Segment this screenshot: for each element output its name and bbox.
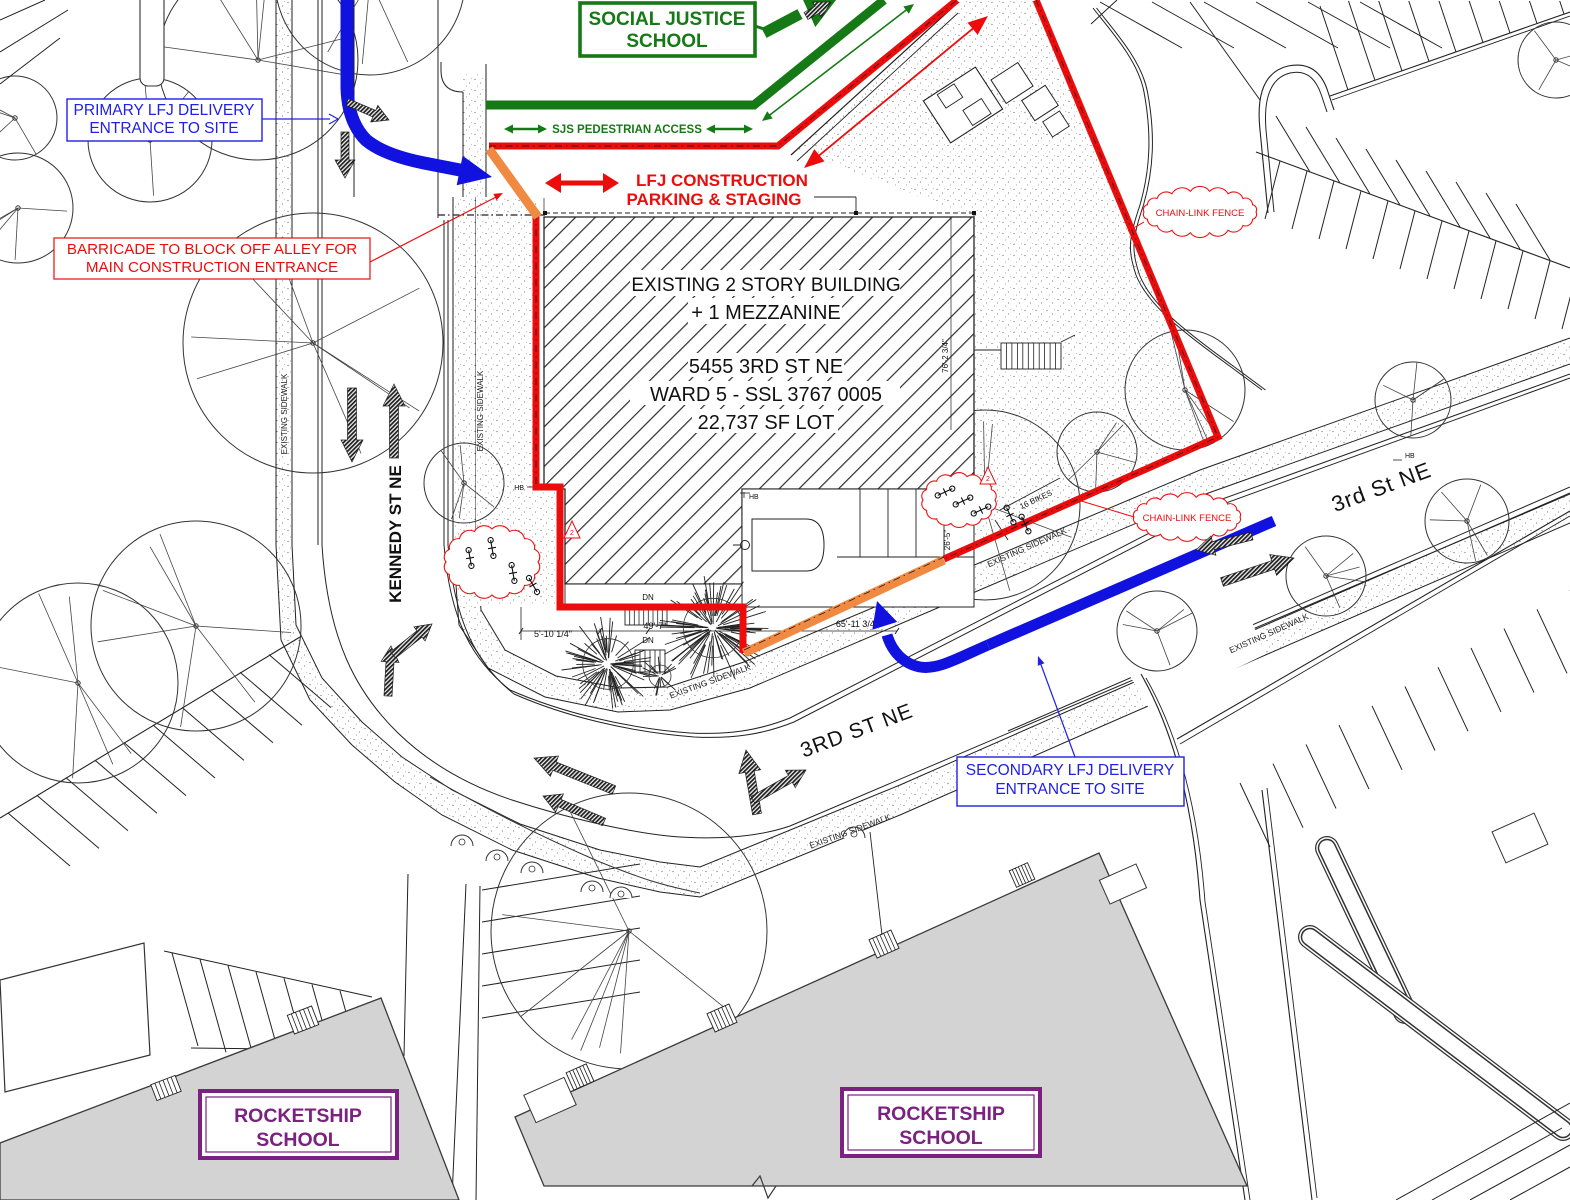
svg-text:HB: HB [1405, 453, 1415, 460]
svg-text:EXISTING 2 STORY BUILDING: EXISTING 2 STORY BUILDING [631, 275, 900, 296]
svg-text:65'-11 3/4": 65'-11 3/4" [836, 619, 878, 629]
svg-text:DN: DN [642, 593, 654, 602]
svg-text:SJS PEDESTRIAN ACCESS: SJS PEDESTRIAN ACCESS [552, 124, 702, 136]
svg-text:ENTRANCE TO SITE: ENTRANCE TO SITE [89, 120, 238, 137]
svg-text:+ 1 MEZZANINE: + 1 MEZZANINE [691, 302, 840, 324]
svg-text:DN: DN [642, 636, 654, 645]
svg-text:SOCIAL JUSTICE: SOCIAL JUSTICE [589, 9, 746, 30]
svg-text:CHAIN-LINK FENCE: CHAIN-LINK FENCE [1143, 513, 1232, 524]
svg-text:MAIN CONSTRUCTION ENTRANCE: MAIN CONSTRUCTION ENTRANCE [86, 259, 338, 276]
svg-text:EXISTING SIDEWALK: EXISTING SIDEWALK [280, 373, 289, 454]
svg-text:CHAIN-LINK FENCE: CHAIN-LINK FENCE [1156, 208, 1245, 219]
svg-text:26'-5": 26'-5" [943, 530, 952, 551]
svg-text:SCHOOL: SCHOOL [899, 1127, 983, 1149]
svg-text:ROCKETSHIP: ROCKETSHIP [234, 1105, 362, 1127]
svg-text:5'-10 1/4": 5'-10 1/4" [534, 629, 572, 639]
svg-text:LFJ CONSTRUCTION: LFJ CONSTRUCTION [636, 171, 808, 190]
svg-text:2: 2 [570, 530, 574, 537]
svg-text:BARRICADE TO BLOCK OFF ALLEY F: BARRICADE TO BLOCK OFF ALLEY FOR [67, 241, 357, 258]
svg-text:SCHOOL: SCHOOL [626, 31, 708, 52]
svg-text:2: 2 [986, 476, 990, 483]
svg-text:ENTRANCE TO SITE: ENTRANCE TO SITE [995, 781, 1144, 798]
svg-text:HB: HB [514, 485, 524, 492]
svg-text:PARKING & STAGING: PARKING & STAGING [626, 190, 801, 209]
svg-text:76'-2 3/4": 76'-2 3/4" [941, 339, 950, 373]
svg-text:WARD 5 - SSL 3767 0005: WARD 5 - SSL 3767 0005 [650, 384, 882, 406]
svg-text:KENNEDY ST NE: KENNEDY ST NE [386, 465, 405, 603]
svg-text:22,737 SF LOT: 22,737 SF LOT [698, 412, 835, 434]
svg-text:ROCKETSHIP: ROCKETSHIP [877, 1103, 1005, 1125]
svg-text:PRIMARY LFJ DELIVERY: PRIMARY LFJ DELIVERY [74, 102, 255, 119]
svg-text:HB: HB [749, 494, 759, 501]
svg-text:5455 3RD ST NE: 5455 3RD ST NE [689, 356, 843, 378]
svg-text:SCHOOL: SCHOOL [256, 1129, 340, 1151]
svg-text:EXISTING SIDEWALK: EXISTING SIDEWALK [476, 370, 485, 451]
svg-text:SECONDARY LFJ DELIVERY: SECONDARY LFJ DELIVERY [966, 762, 1174, 779]
